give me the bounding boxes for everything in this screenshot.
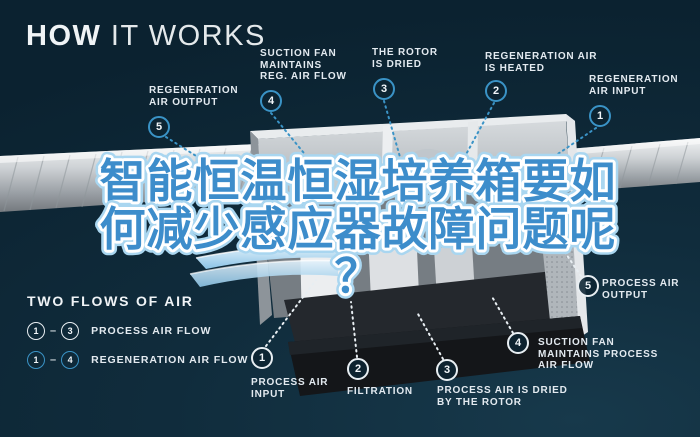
callout-label-process-dried: PROCESS AIR IS DRIED BY THE ROTOR bbox=[437, 385, 568, 408]
badge-regen-4: 4 bbox=[260, 90, 282, 112]
legend-dash: – bbox=[50, 354, 56, 366]
badge-process-1: 1 bbox=[251, 347, 273, 369]
badge-process-3: 3 bbox=[436, 359, 458, 381]
legend-circle-from: 1 bbox=[27, 322, 45, 340]
legend-label: PROCESS AIR FLOW bbox=[91, 325, 211, 337]
legend-title: TWO FLOWS OF AIR bbox=[27, 293, 248, 309]
badge-regen-3: 3 bbox=[373, 78, 395, 100]
badge-process-4: 4 bbox=[507, 332, 529, 354]
callout-label-regen-output: REGENERATION AIR OUTPUT bbox=[149, 85, 238, 108]
legend-label: REGENERATION AIR FLOW bbox=[91, 354, 248, 366]
legend-dash: – bbox=[50, 325, 56, 337]
air-flow-legend: TWO FLOWS OF AIR 1 – 3 PROCESS AIR FLOW … bbox=[27, 293, 248, 380]
badge-process-5: 5 bbox=[577, 275, 599, 297]
legend-circle-from: 1 bbox=[27, 351, 45, 369]
legend-row-process: 1 – 3 PROCESS AIR FLOW bbox=[27, 322, 248, 340]
badge-regen-5: 5 bbox=[148, 116, 170, 138]
badge-regen-2: 2 bbox=[485, 80, 507, 102]
callout-label-suction-fan-reg: SUCTION FAN MAINTAINS REG. AIR FLOW bbox=[260, 48, 347, 83]
callout-label-suction-fan-process: SUCTION FAN MAINTAINS PROCESS AIR FLOW bbox=[538, 337, 658, 372]
legend-circle-to: 3 bbox=[61, 322, 79, 340]
badge-process-2: 2 bbox=[347, 358, 369, 380]
badge-regen-1: 1 bbox=[589, 105, 611, 127]
callout-label-rotor-dried: THE ROTOR IS DRIED bbox=[372, 47, 438, 70]
legend-circle-to: 4 bbox=[61, 351, 79, 369]
callout-label-process-input: PROCESS AIR INPUT bbox=[251, 377, 328, 400]
callout-label-process-output: PROCESS AIR OUTPUT bbox=[602, 278, 679, 301]
callout-label-regen-heated: REGENERATION AIR IS HEATED bbox=[485, 51, 597, 74]
callout-label-regen-input: REGENERATION AIR INPUT bbox=[589, 74, 678, 97]
infographic-canvas: 智能恒温恒湿培养箱要如 智能恒温恒湿培养箱要如 何减少感应器故障问题呢 何减少感… bbox=[0, 0, 700, 437]
callout-label-filtration: FILTRATION bbox=[347, 386, 413, 398]
legend-row-regeneration: 1 – 4 REGENERATION AIR FLOW bbox=[27, 351, 248, 369]
